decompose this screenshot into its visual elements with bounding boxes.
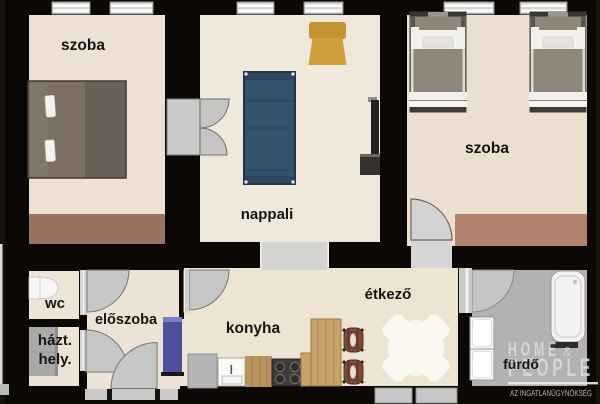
svg-text:szoba: szoba xyxy=(61,37,105,54)
svg-text:házt.: házt. xyxy=(38,332,72,349)
svg-text:AZ INGATLANÜGYNÖKSÉG: AZ INGATLANÜGYNÖKSÉG xyxy=(510,389,592,398)
svg-text:előszoba: előszoba xyxy=(95,312,158,328)
svg-text:wc: wc xyxy=(44,295,65,312)
svg-text:étkező: étkező xyxy=(365,286,412,303)
svg-text:hely.: hely. xyxy=(38,351,71,368)
svg-text:nappali: nappali xyxy=(241,206,294,223)
svg-text:fürdő: fürdő xyxy=(503,356,539,372)
svg-text:szoba: szoba xyxy=(465,140,509,157)
svg-text:konyha: konyha xyxy=(226,320,281,337)
